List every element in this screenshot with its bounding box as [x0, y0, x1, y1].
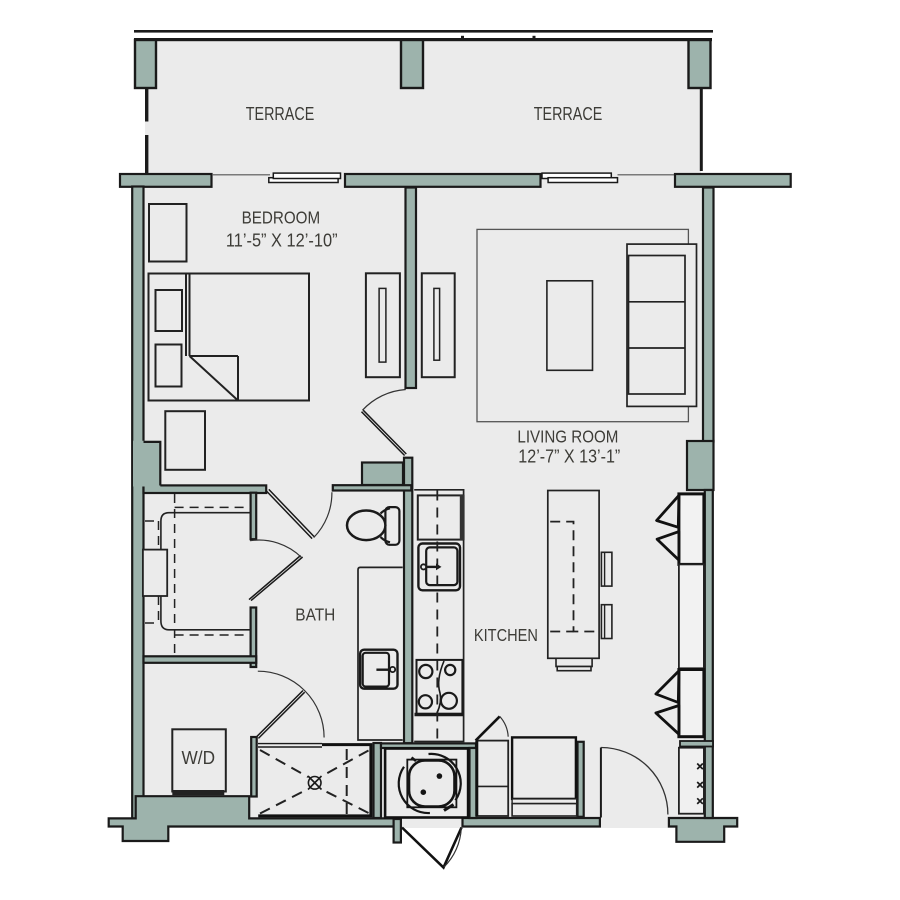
svg-text:BATH: BATH — [295, 605, 335, 625]
svg-text:W/D: W/D — [182, 748, 216, 768]
svg-text:TERRACE: TERRACE — [246, 104, 315, 124]
svg-text:11’-5” X 12’-10”: 11’-5” X 12’-10” — [226, 230, 338, 250]
svg-text:TERRACE: TERRACE — [534, 104, 603, 124]
svg-text:KITCHEN: KITCHEN — [474, 625, 538, 645]
svg-text:BEDROOM: BEDROOM — [242, 207, 321, 227]
svg-text:LIVING ROOM: LIVING ROOM — [517, 427, 618, 447]
svg-text:12’-7” X 13’-1”: 12’-7” X 13’-1” — [518, 447, 620, 467]
